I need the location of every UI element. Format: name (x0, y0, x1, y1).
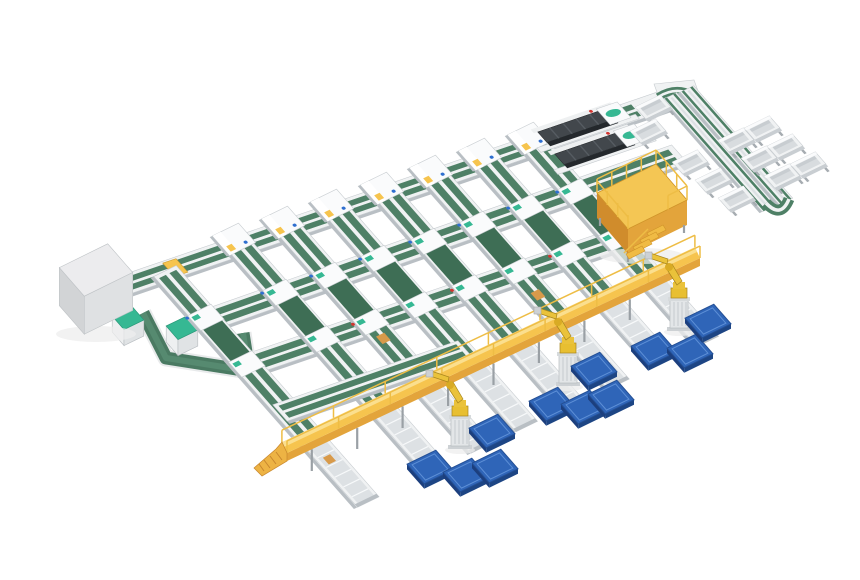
factory-render-stage: Automated production line with conveyors… (0, 0, 860, 580)
walkway-ramp (254, 442, 287, 476)
factory-render: Automated production line with conveyors… (0, 0, 860, 580)
